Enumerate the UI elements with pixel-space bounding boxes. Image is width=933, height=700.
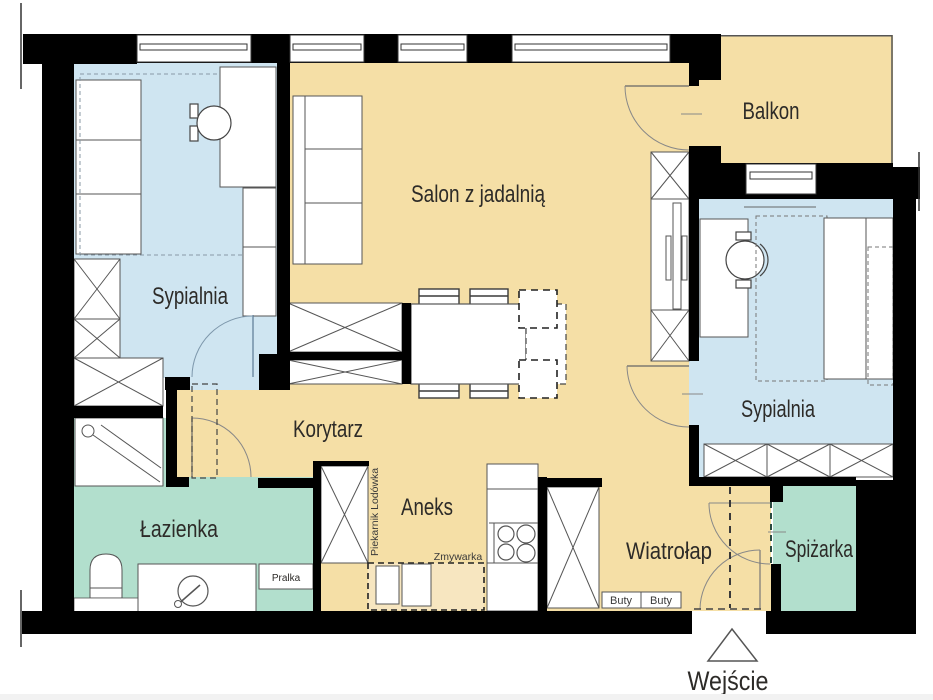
svg-text:Sypialnia: Sypialnia — [741, 396, 815, 423]
svg-text:Piekarnik Lodówka: Piekarnik Lodówka — [369, 468, 381, 556]
svg-text:Korytarz: Korytarz — [293, 416, 363, 443]
svg-text:Buty: Buty — [610, 595, 633, 607]
svg-text:Zmywarka: Zmywarka — [434, 551, 483, 563]
svg-text:Sypialnia: Sypialnia — [152, 283, 228, 310]
svg-text:Aneks: Aneks — [401, 494, 453, 521]
svg-text:Balkon: Balkon — [743, 98, 800, 125]
svg-text:Salon z jadalnią: Salon z jadalnią — [411, 181, 546, 208]
svg-text:Wejście: Wejście — [688, 666, 769, 696]
svg-text:Pralka: Pralka — [272, 573, 301, 584]
svg-text:Wiatrołap: Wiatrołap — [626, 538, 712, 565]
svg-text:Buty: Buty — [650, 595, 673, 607]
svg-text:Spiżarka: Spiżarka — [785, 536, 853, 563]
svg-text:Łazienka: Łazienka — [140, 516, 219, 543]
